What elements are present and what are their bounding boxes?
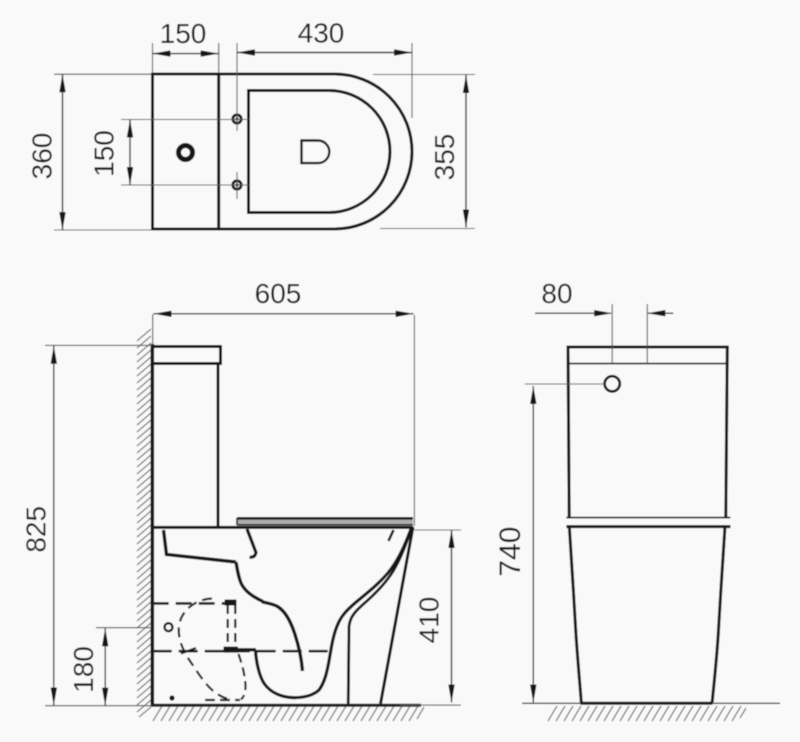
svg-text:355: 355 <box>429 134 460 181</box>
svg-text:430: 430 <box>298 18 345 49</box>
svg-text:605: 605 <box>255 278 302 309</box>
svg-text:80: 80 <box>541 278 572 309</box>
svg-text:150: 150 <box>89 130 120 177</box>
svg-text:410: 410 <box>414 597 445 644</box>
svg-text:740: 740 <box>494 527 527 577</box>
svg-text:150: 150 <box>160 18 207 49</box>
svg-text:360: 360 <box>27 133 58 180</box>
svg-text:825: 825 <box>20 506 51 553</box>
svg-text:180: 180 <box>68 646 99 693</box>
